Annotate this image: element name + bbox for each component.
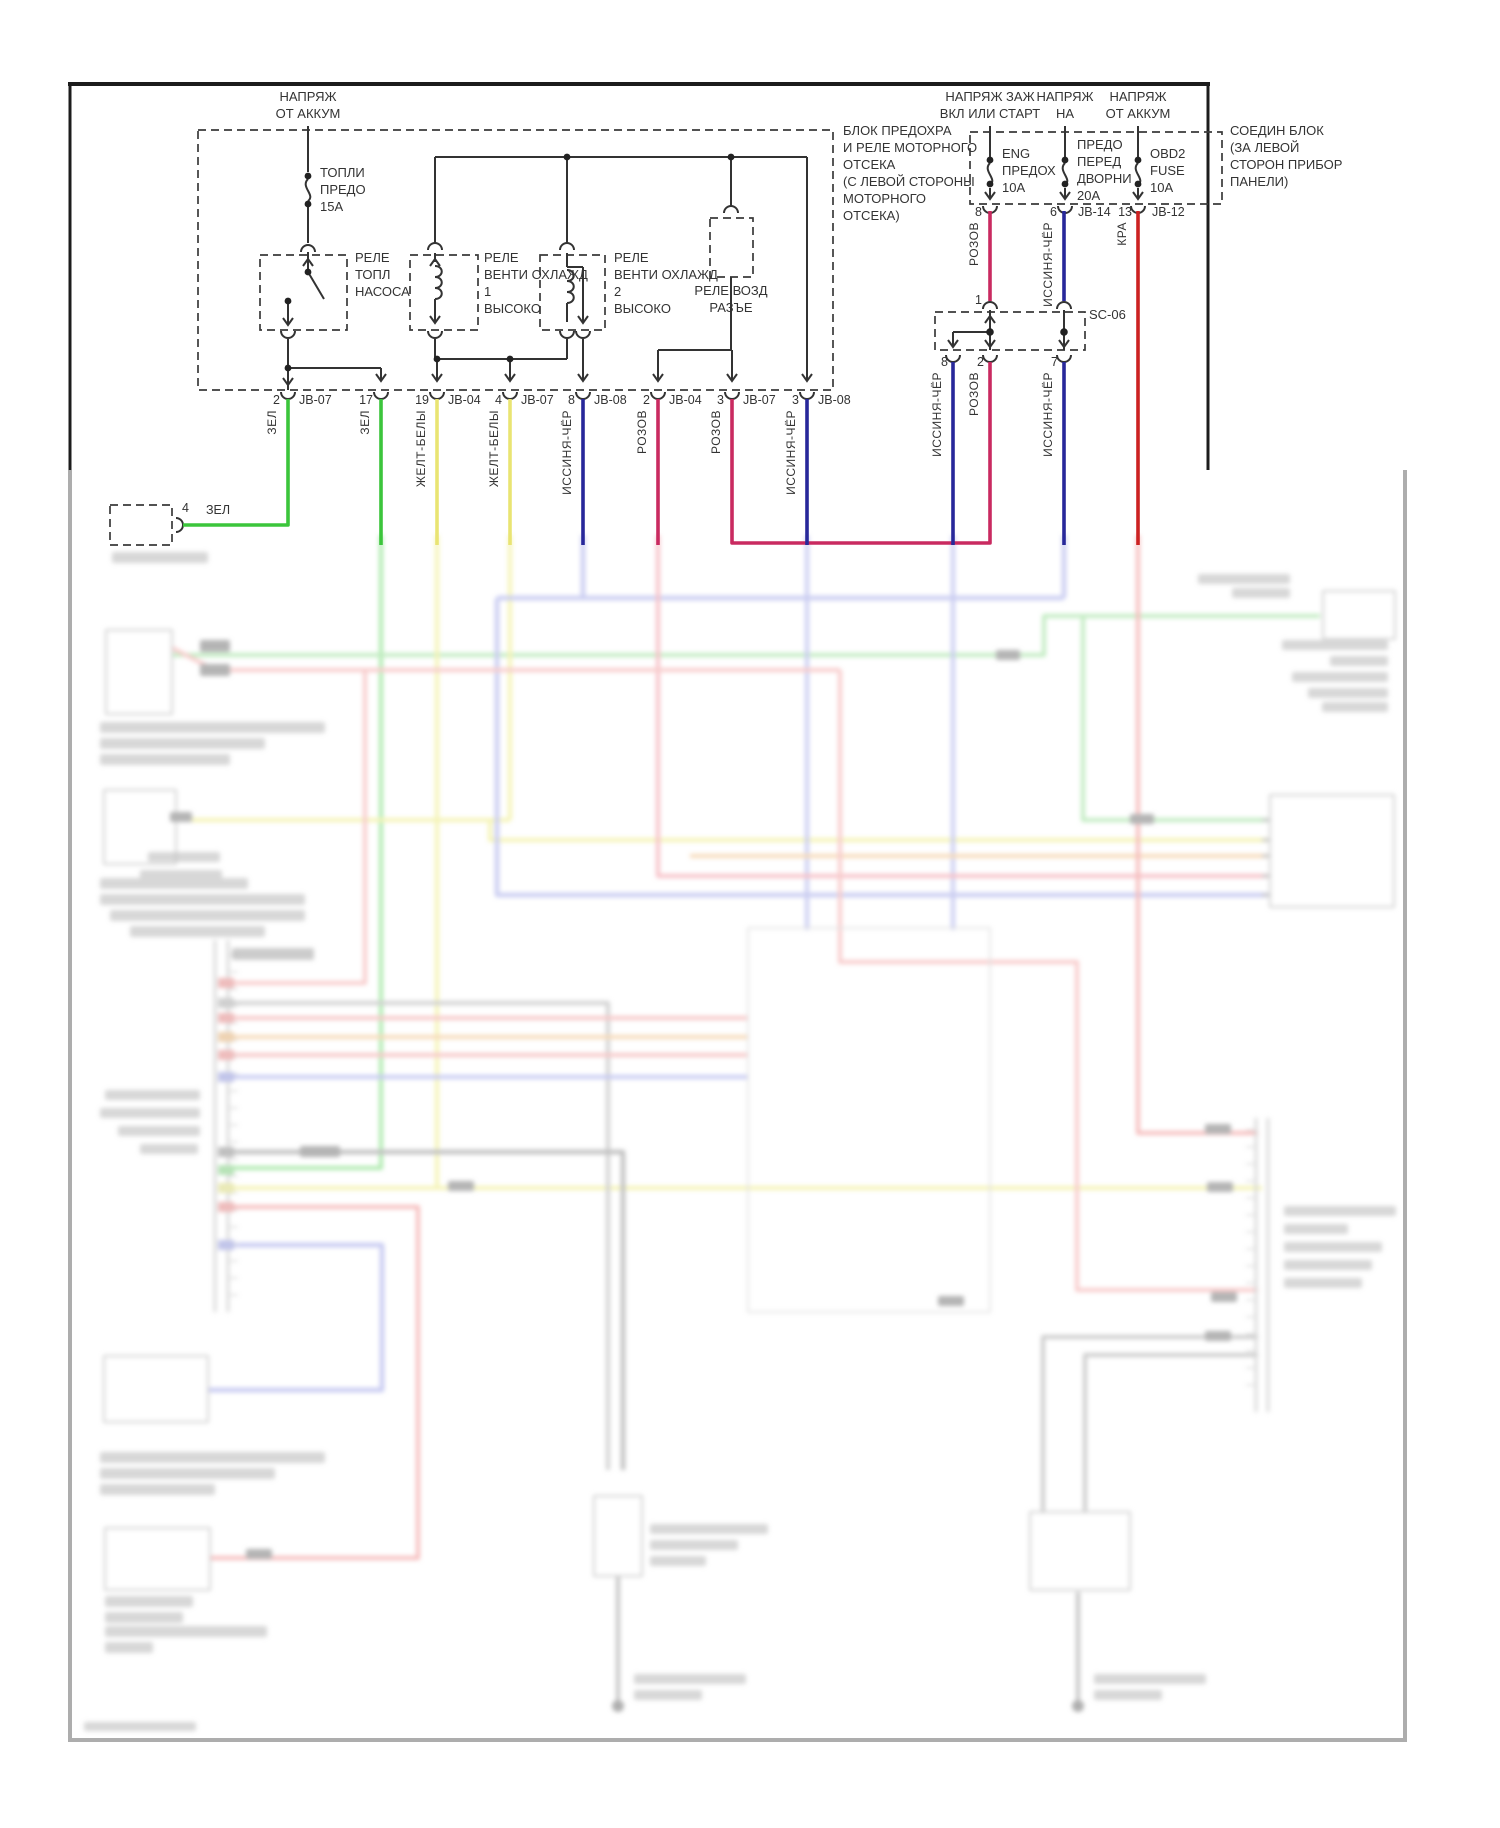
relay-fan2-label: ВЫСОКО	[614, 302, 671, 315]
pin-number: 19	[415, 394, 429, 407]
fuse-fuel-label: ТОПЛИ	[320, 166, 365, 179]
splice-name: SC-06	[1089, 308, 1126, 321]
fuse-wiper-label: ПРЕДО	[1077, 138, 1123, 151]
fuse-eng-label: ENG	[1002, 147, 1030, 160]
pin-jb-label: JB-04	[669, 394, 702, 407]
wire-color-label: ЗЕЛ	[359, 410, 371, 435]
splice-pin-number: 2	[977, 356, 984, 369]
feed-right-drop	[802, 157, 812, 381]
lower-page-frame	[70, 470, 1405, 1740]
wire-color-label: ЖЕЛТ-БЕЛЫ	[415, 410, 427, 487]
pin-number: 8	[568, 394, 575, 407]
pin-jb-label: JB-08	[818, 394, 851, 407]
power-label: НАПРЯЖ ЗАЖ	[945, 90, 1034, 103]
wiring-diagram-page: НАПРЯЖ ОТ АККУМ ТОПЛИ ПРЕДО 15А РЕЛЕ ТОП…	[0, 0, 1500, 1828]
fuse-wiper-label: ПЕРЕД	[1077, 155, 1121, 168]
pin-jb-label: JB-04	[448, 394, 481, 407]
pin-number: 2	[273, 394, 280, 407]
left-connector-pin-number: 4	[182, 502, 189, 515]
fuse-wiper-label: 20А	[1077, 189, 1100, 202]
relay-fan1-label: ВЫСОКО	[484, 302, 541, 315]
pin-arc	[301, 245, 315, 252]
pin-number: 3	[717, 394, 724, 407]
fuse-obd2-label: 10А	[1150, 181, 1173, 194]
wire-color-label: ИССИНЯ-ЧЁР	[1042, 372, 1054, 457]
relay-fan1-label: 1	[484, 285, 491, 298]
relay-fan2-label: 2	[614, 285, 621, 298]
power-label: ОТ АККУМ	[1106, 107, 1171, 120]
power-label: НА	[1056, 107, 1074, 120]
fuel-relay-output	[281, 331, 386, 390]
wire-color-label: ИССИНЯ-ЧЁР	[1042, 222, 1054, 307]
fuse-wiper-label: ДВОРНИ	[1077, 172, 1132, 185]
pin-number: 4	[495, 394, 502, 407]
wire-color-label: РОЗОВ	[968, 372, 980, 416]
fuel-relay-switch	[283, 252, 324, 325]
wire-color-label: КРА	[1116, 222, 1128, 246]
power-label: НАПРЯЖ	[279, 90, 336, 103]
wire-color-label: РОЗОВ	[968, 222, 980, 266]
splice-pin-number: 7	[1051, 356, 1058, 369]
power-label: ВКЛ ИЛИ СТАРТ	[940, 107, 1040, 120]
pin-jb-label: JB-12	[1152, 206, 1185, 219]
splice-pin-number: 1	[975, 294, 982, 307]
power-label: НАПРЯЖ	[1109, 90, 1166, 103]
pin-jb-label: JB-07	[743, 394, 776, 407]
wire-color-label: ЗЕЛ	[266, 410, 278, 435]
power-label: НАПРЯЖ	[1036, 90, 1093, 103]
wire-color-label: РОЗОВ	[636, 410, 648, 454]
engine-block-label: (С ЛЕВОЙ СТОРОНЫ	[843, 175, 975, 188]
pin-jb-label: JB-07	[521, 394, 554, 407]
relay-fuel-label: РЕЛЕ	[355, 251, 390, 264]
schematic-lines	[0, 0, 1500, 1828]
join-block-label: (ЗА ЛЕВОЙ	[1230, 141, 1299, 154]
relay-fan2-label: ВЕНТИ ОХЛАЖД	[614, 268, 718, 281]
engine-block-label: И РЕЛЕ МОТОРНОГО	[843, 141, 977, 154]
fan-relay1-coil	[428, 157, 442, 359]
pin-jb-label: JB-07	[299, 394, 332, 407]
fuse-fuel-label: ПРЕДО	[320, 183, 366, 196]
fuse-obd2-label: FUSE	[1150, 164, 1185, 177]
pin-number: 8	[975, 206, 982, 219]
pin-jb-label: JB-08	[594, 394, 627, 407]
wire-color-label: ИССИНЯ-ЧЁР	[561, 410, 573, 495]
eng-fuse	[983, 126, 997, 213]
splice-pin-number: 8	[941, 356, 948, 369]
sc06-internals	[946, 302, 1071, 362]
relay-fan2-label: РЕЛЕ	[614, 251, 649, 264]
pin-number: 6	[1050, 206, 1057, 219]
left-connector-box	[110, 505, 172, 545]
fuel-fuse-feed	[306, 126, 311, 243]
relay-fan1-label: ВЕНТИ ОХЛАЖД	[484, 268, 588, 281]
wire-color-label: РОЗОВ	[710, 410, 722, 454]
fuse-eng-label: ПРЕДОХ	[1002, 164, 1056, 177]
pin-number: 17	[359, 394, 373, 407]
engine-block-label: ОТСЕКА	[843, 158, 895, 171]
relay-air-label: РЕЛЕ ВОЗД	[694, 284, 767, 297]
relay-fan1-label: РЕЛЕ	[484, 251, 519, 264]
pin-number: 13	[1118, 206, 1132, 219]
engine-block-label: МОТОРНОГО	[843, 192, 926, 205]
pin-number: 3	[792, 394, 799, 407]
join-block-label: СОЕДИН БЛОК	[1230, 124, 1324, 137]
relay-fuel-label: ТОПЛ	[355, 268, 390, 281]
left-connector-pin-arc	[176, 518, 183, 532]
pin-jb-label: JB-14	[1078, 206, 1111, 219]
power-label: ОТ АККУМ	[276, 107, 341, 120]
join-block-label: ПАНЕЛИ)	[1230, 175, 1288, 188]
pin-number: 2	[643, 394, 650, 407]
wire-color-label: ИССИНЯ-ЧЁР	[931, 372, 943, 457]
left-connector-wire-label: ЗЕЛ	[206, 504, 230, 517]
relay-air-label: РАЗЪЕ	[709, 301, 752, 314]
wire-color-label: ИССИНЯ-ЧЁР	[785, 410, 797, 495]
wiper-fuse	[1058, 126, 1072, 213]
join-block-label: СТОРОН ПРИБОР	[1230, 158, 1342, 171]
fan-relay1-box	[410, 255, 478, 330]
obd2-fuse	[1131, 126, 1145, 213]
fuse-eng-label: 10А	[1002, 181, 1025, 194]
fuse-fuel-label: 15А	[320, 200, 343, 213]
engine-block-label: БЛОК ПРЕДОХРА	[843, 124, 952, 137]
relay-fuel-label: НАСОСА	[355, 285, 410, 298]
fuse-obd2-label: OBD2	[1150, 147, 1185, 160]
fan-relay-output-bus	[432, 359, 567, 381]
wire-color-label: ЖЕЛТ-БЕЛЫ	[488, 410, 500, 487]
engine-block-label: ОТСЕКА)	[843, 209, 900, 222]
